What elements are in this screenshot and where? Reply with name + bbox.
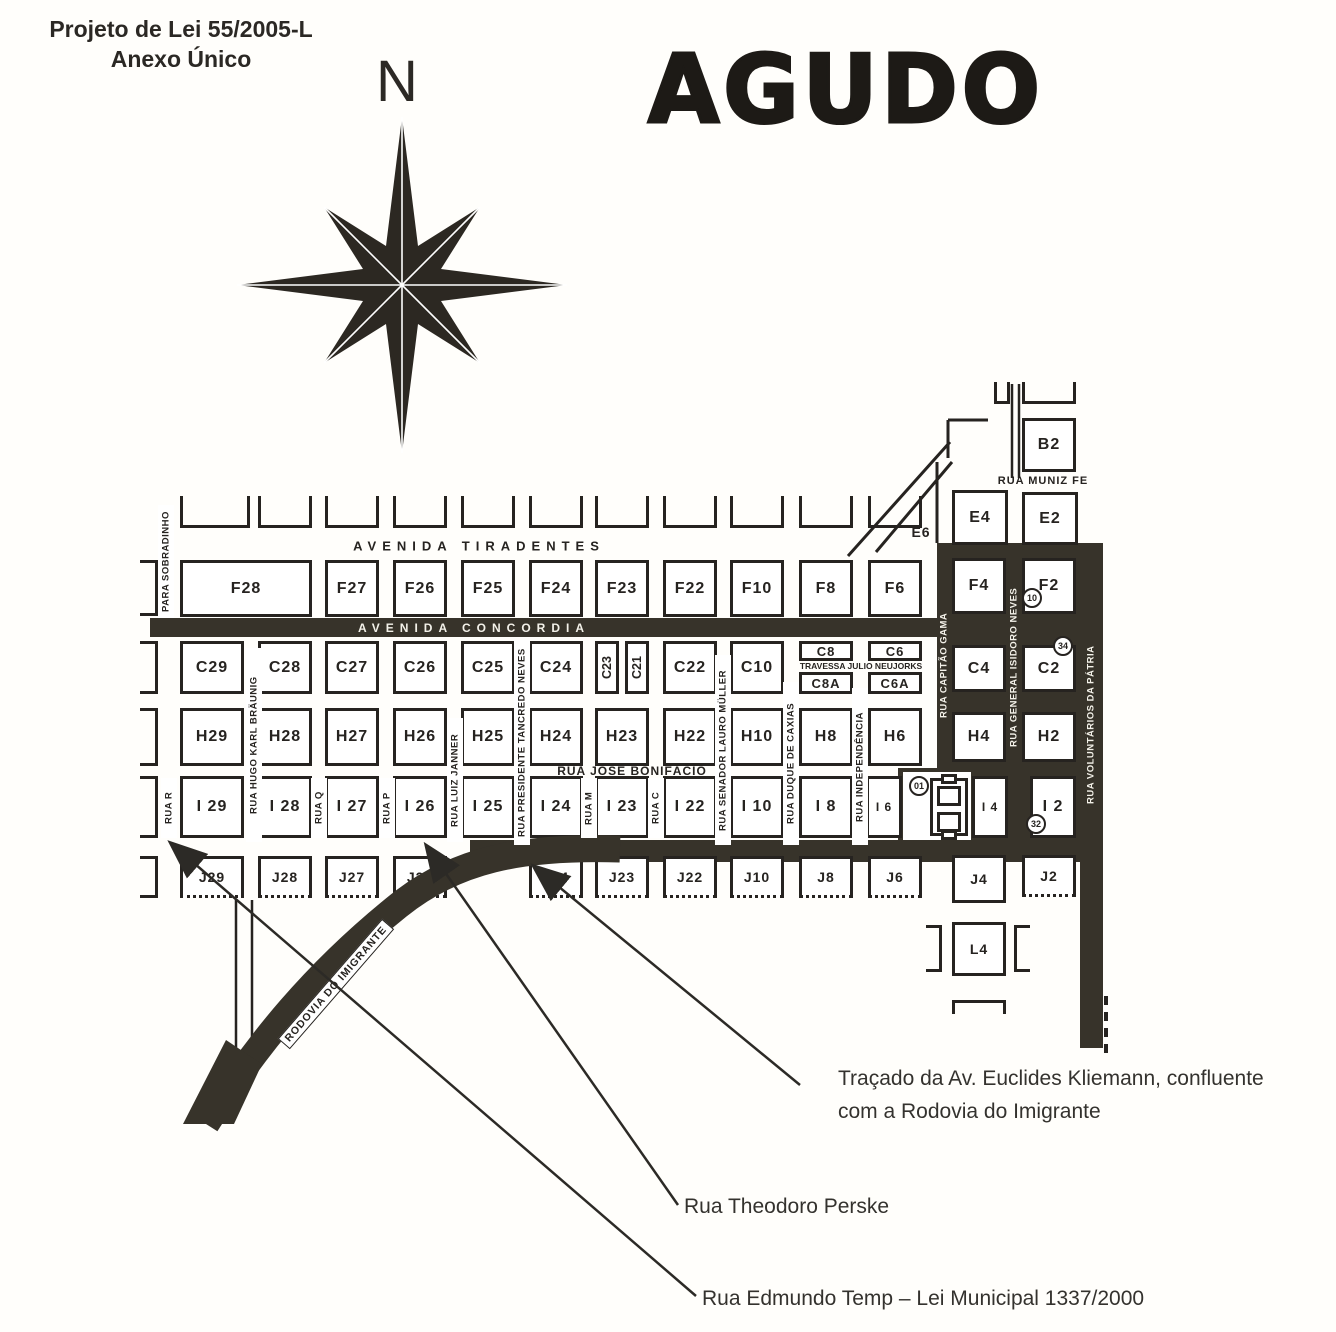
block-H22: H22 xyxy=(663,708,717,766)
block-I8: I 8 xyxy=(799,776,853,838)
page-title: AGUDO xyxy=(648,34,1044,144)
note-theodoro-perske-text: Rua Theodoro Perske xyxy=(684,1190,889,1223)
block-F6: F6 xyxy=(868,560,922,617)
street-label-para-sobradinho: PARA SOBRADINHO xyxy=(158,505,174,618)
note-edmundo-temp-text: Rua Edmundo Temp – Lei Municipal 1337/20… xyxy=(702,1282,1144,1315)
partial-block-outline xyxy=(258,496,312,528)
partial-block-outline xyxy=(140,776,158,838)
note-kliemann-text: com a Rodovia do Imigrante xyxy=(838,1095,1264,1128)
street-label-rua-independencia: RUA INDEPENDÊNCIA xyxy=(852,688,868,845)
block-C28: C28 xyxy=(258,641,312,694)
street-label-rodovia-do-imigrante: RODOVIA DO IMIGRANTE xyxy=(278,919,394,1050)
partial-block-outline xyxy=(1014,925,1030,972)
block-E4: E4 xyxy=(952,490,1008,545)
street-label-avenida-tiradentes: AVENIDA TIRADENTES xyxy=(353,539,605,554)
street-label-avenida-concordia: AVENIDA CONCORDIA xyxy=(358,621,590,635)
block-I29: I 29 xyxy=(180,776,244,838)
block-I28: I 28 xyxy=(258,776,312,838)
block-I27: I 27 xyxy=(325,776,379,838)
block-C4: C4 xyxy=(952,645,1006,692)
badge-32: 32 xyxy=(1026,814,1046,834)
law-line1: Projeto de Lei 55/2005-L xyxy=(26,14,336,44)
sports-field-part xyxy=(941,830,957,840)
block-I22: I 22 xyxy=(663,776,717,838)
compass-north-label: N xyxy=(376,48,418,115)
street-label-rua-senador-lauro-muller: RUA SENADOR LAURO MÜLLER xyxy=(715,655,731,845)
partial-block-outline xyxy=(663,496,717,528)
note-kliemann: Traçado da Av. Euclides Kliemann, conflu… xyxy=(838,1062,1264,1128)
block-J22: J22 xyxy=(663,856,717,898)
block-I24: I 24 xyxy=(529,776,583,838)
block-C26: C26 xyxy=(393,641,447,694)
block-H29: H29 xyxy=(180,708,244,766)
block-J10: J10 xyxy=(730,856,784,898)
street-label-rua-p: RUA P xyxy=(379,778,395,838)
sports-field-part xyxy=(941,774,957,784)
street-label-travessa-julio-neujorks: TRAVESSA JULIO NEUJORKS xyxy=(800,661,922,671)
block-C25: C25 xyxy=(461,641,515,694)
block-H10: H10 xyxy=(730,708,784,766)
block-J4: J4 xyxy=(952,855,1006,903)
block-J28: J28 xyxy=(258,856,312,898)
block-C23: C23 xyxy=(595,641,619,694)
street-label-rua-hugo-karl-braunig: RUA HUGO KARL BRÄUNIG xyxy=(246,648,262,842)
partial-block-outline xyxy=(926,925,942,972)
block-L4: L4 xyxy=(952,922,1006,976)
partial-block-outline xyxy=(325,496,379,528)
block-F25: F25 xyxy=(461,560,515,617)
block-F10: F10 xyxy=(730,560,784,617)
street-label-rua-presidente-tancredo-neves: RUA PRESIDENTE TANCREDO NEVES xyxy=(514,640,530,845)
block-C21: C21 xyxy=(625,641,649,694)
block-C29: C29 xyxy=(180,641,244,694)
block-E2: E2 xyxy=(1022,492,1078,545)
block-J29: J29 xyxy=(180,856,244,898)
block-B2: B2 xyxy=(1022,418,1076,472)
block-J24: J24 xyxy=(529,856,583,898)
street-label-rua-luiz-janner: RUA LUIZ JANNER xyxy=(447,718,463,842)
block-C10: C10 xyxy=(730,641,784,694)
street-label-quadra-e6: E6 xyxy=(911,524,930,540)
street-label-rua-duque-de-caxias: RUA DUQUE DE CAXIAS xyxy=(783,682,799,845)
block-H4: H4 xyxy=(952,712,1006,762)
partial-block-outline xyxy=(393,496,447,528)
block-H25: H25 xyxy=(461,708,515,766)
street-label-rua-q: RUA Q xyxy=(311,778,327,838)
partial-block-outline xyxy=(140,560,158,616)
block-J8: J8 xyxy=(799,856,853,898)
scanned-map-page: Projeto de Lei 55/2005-L Anexo Único AGU… xyxy=(0,0,1336,1332)
badge-34: 34 xyxy=(1053,636,1073,656)
block-F27: F27 xyxy=(325,560,379,617)
street-label-rua-voluntarios-da-patria: RUA VOLUNTÁRIOS DA PÁTRIA xyxy=(1083,598,1099,852)
law-line2: Anexo Único xyxy=(26,44,336,74)
block-J23: J23 xyxy=(595,856,649,898)
partial-block-outline xyxy=(730,496,784,528)
note-kliemann-text: Traçado da Av. Euclides Kliemann, conflu… xyxy=(838,1062,1264,1095)
block-C6: C6 xyxy=(868,641,922,661)
note-theodoro-perske: Rua Theodoro Perske xyxy=(684,1190,889,1223)
block-C24: C24 xyxy=(529,641,583,694)
badge-10: 10 xyxy=(1022,588,1042,608)
block-I23: I 23 xyxy=(595,776,649,838)
block-C8: C8 xyxy=(799,641,853,661)
partial-block-outline xyxy=(952,1000,1006,1014)
block-F22: F22 xyxy=(663,560,717,617)
sports-field-part xyxy=(937,786,961,806)
partial-block-outline xyxy=(799,496,853,528)
block-H6: H6 xyxy=(868,708,922,766)
partial-block-outline xyxy=(529,496,583,528)
street-label-rua-r: RUA R xyxy=(161,778,177,838)
block-J26: J26 xyxy=(393,856,447,898)
street-label-rua-c: RUA C xyxy=(648,778,664,838)
block-F8: F8 xyxy=(799,560,853,617)
partial-block-outline xyxy=(140,708,158,766)
block-I4: I 4 xyxy=(972,776,1008,838)
partial-block-outline xyxy=(140,856,158,898)
block-F28: F28 xyxy=(180,560,312,617)
block-I10: I 10 xyxy=(730,776,784,838)
block-F4: F4 xyxy=(952,558,1006,614)
block-F24: F24 xyxy=(529,560,583,617)
block-I25: I 25 xyxy=(461,776,515,838)
block-H8: H8 xyxy=(799,708,853,766)
block-J6: J6 xyxy=(868,856,922,898)
block-I6: I 6 xyxy=(866,776,902,838)
law-caption: Projeto de Lei 55/2005-L Anexo Único xyxy=(26,14,336,74)
street-label-rua-general-isidoro-neves: RUA GENERAL ISIDORO NEVES xyxy=(1006,552,1022,782)
note-theodoro-perske-leader-line xyxy=(428,848,678,1205)
block-F23: F23 xyxy=(595,560,649,617)
block-J2: J2 xyxy=(1022,855,1076,897)
partial-block-outline xyxy=(595,496,649,528)
block-C27: C27 xyxy=(325,641,379,694)
street-label-rua-capitao-gama: RUA CAPITÃO GAMA xyxy=(936,556,952,775)
block-H28: H28 xyxy=(258,708,312,766)
street-label-rua-jose-bonifacio: RUA JOSÉ BONIFÁCIO xyxy=(557,764,707,778)
note-edmundo-temp: Rua Edmundo Temp – Lei Municipal 1337/20… xyxy=(702,1282,1144,1315)
block-F26: F26 xyxy=(393,560,447,617)
block-H24: H24 xyxy=(529,708,583,766)
block-I26: I 26 xyxy=(393,776,447,838)
block-C22: C22 xyxy=(663,641,717,694)
partial-block-outline xyxy=(1022,382,1076,404)
block-J27: J27 xyxy=(325,856,379,898)
sports-field-part xyxy=(937,812,961,832)
partial-block-outline xyxy=(994,382,1010,404)
partial-block-outline xyxy=(461,496,515,528)
street-label-rua-m: RUA M xyxy=(581,778,597,838)
block-H2: H2 xyxy=(1022,712,1076,762)
block-H27: H27 xyxy=(325,708,379,766)
note-edmundo-temp-leader-line xyxy=(173,845,696,1296)
note-kliemann-leader-line xyxy=(536,868,800,1085)
block-C6A: C6A xyxy=(868,672,922,694)
block-H26: H26 xyxy=(393,708,447,766)
block-H23: H23 xyxy=(595,708,649,766)
partial-block-outline xyxy=(140,641,158,694)
badge-01: 01 xyxy=(909,776,929,796)
street-label-rua-muniz-fe: RUA MUNIZ FE xyxy=(998,475,1088,487)
block-C8A: C8A xyxy=(799,672,853,694)
partial-block-outline xyxy=(180,496,250,528)
